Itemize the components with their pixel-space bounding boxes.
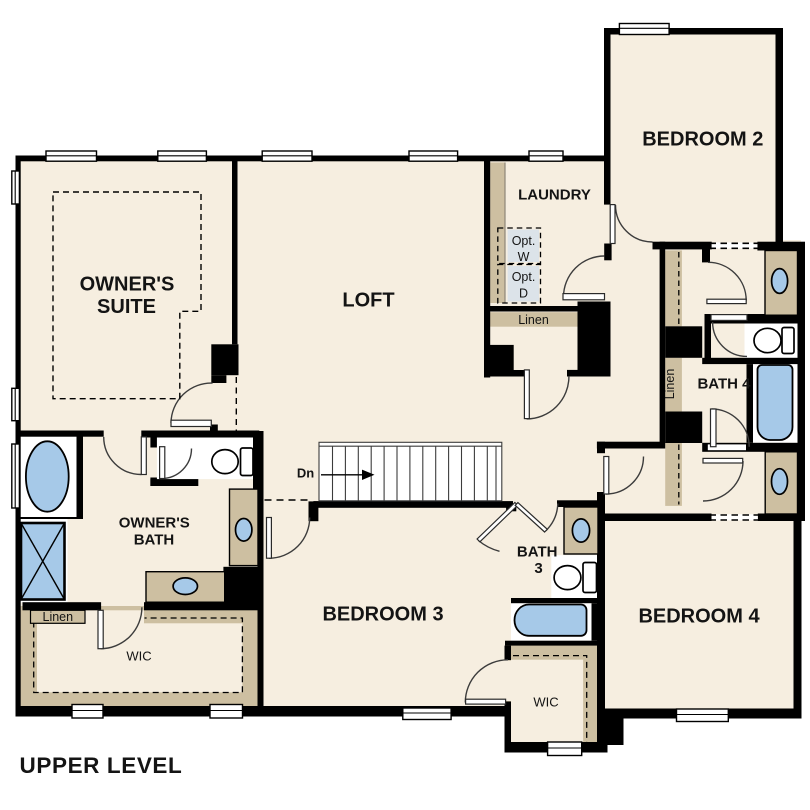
svg-text:BEDROOM 2: BEDROOM 2 — [642, 129, 763, 151]
svg-text:Linen: Linen — [518, 313, 549, 327]
svg-text:BEDROOM 3: BEDROOM 3 — [322, 604, 443, 626]
svg-text:LAUNDRY: LAUNDRY — [518, 187, 591, 204]
svg-text:UPPER LEVEL: UPPER LEVEL — [20, 753, 183, 778]
svg-text:BEDROOM 4: BEDROOM 4 — [638, 606, 760, 628]
svg-text:Opt.: Opt. — [512, 234, 536, 248]
svg-text:WIC: WIC — [126, 649, 151, 664]
svg-text:D: D — [519, 287, 528, 301]
svg-text:BATH: BATH — [517, 544, 558, 561]
svg-text:3: 3 — [534, 560, 542, 577]
svg-text:OWNER'S: OWNER'S — [80, 274, 175, 296]
svg-text:Dn: Dn — [297, 466, 314, 481]
svg-text:W: W — [518, 250, 530, 264]
svg-text:OWNER'S: OWNER'S — [119, 515, 190, 532]
svg-text:Opt.: Opt. — [512, 270, 536, 284]
svg-text:WIC: WIC — [533, 695, 558, 710]
svg-text:LOFT: LOFT — [342, 290, 394, 312]
svg-text:Linen: Linen — [43, 610, 74, 624]
svg-text:SUITE: SUITE — [97, 296, 156, 318]
svg-text:BATH 4: BATH 4 — [697, 376, 751, 393]
svg-text:BATH: BATH — [134, 532, 175, 549]
